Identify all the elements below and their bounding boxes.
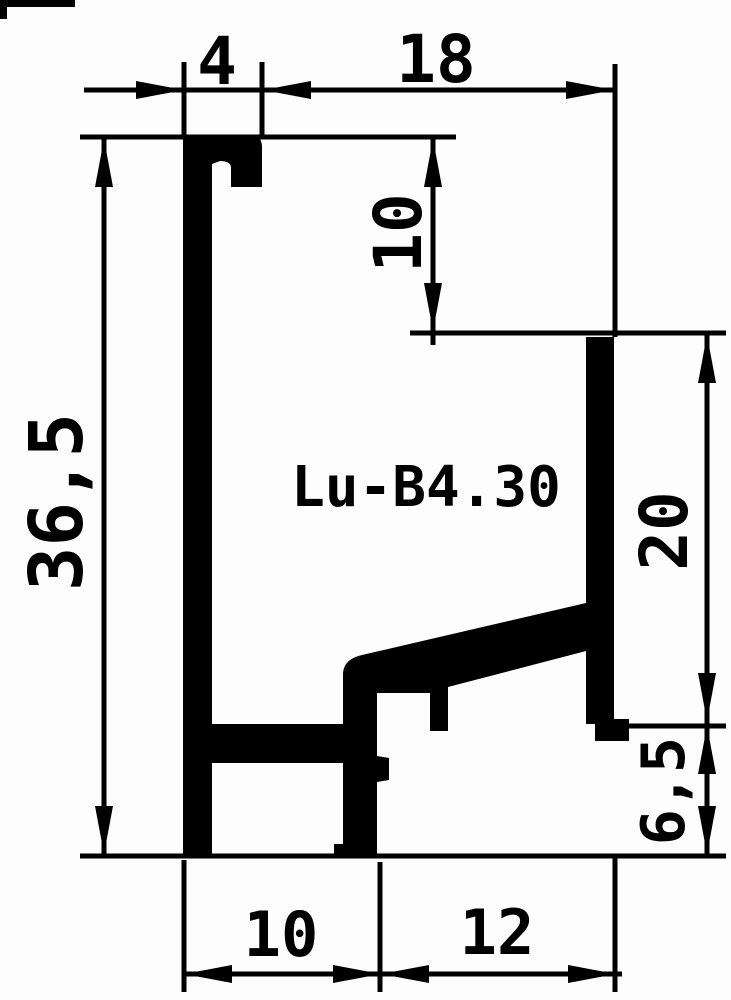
- arrowhead: [184, 965, 232, 983]
- arrowhead: [698, 673, 716, 721]
- profile-label: Lu-B4.30: [291, 455, 561, 520]
- arrowhead: [136, 81, 184, 99]
- arrowhead: [95, 139, 113, 187]
- arrowhead: [381, 965, 429, 983]
- dim-label-inner-height: 10: [360, 193, 437, 272]
- scan-artifact: [0, 0, 75, 7]
- arrowhead: [333, 965, 381, 983]
- arrowhead: [698, 335, 716, 383]
- dim-label-lower-right-height: 6,5: [629, 737, 699, 845]
- dim-label-bottom-right-width: 12: [460, 896, 535, 969]
- arrowhead: [424, 139, 442, 187]
- dim-label-top-opening: 18: [396, 21, 475, 98]
- dim-label-overall-height: 36,5: [14, 413, 100, 591]
- arrowhead: [95, 806, 113, 854]
- dim-label-hook-width: 4: [197, 23, 237, 100]
- arrowhead: [263, 81, 311, 99]
- arrowhead: [568, 965, 616, 983]
- arrowhead: [566, 81, 614, 99]
- arrowhead: [698, 806, 716, 854]
- arrowhead: [698, 726, 716, 774]
- dim-label-bottom-left-width: 10: [244, 898, 319, 971]
- drawing-sheet: 4 18 10 36,5 20 6,5 10 12 Lu-B4.30: [0, 0, 731, 1000]
- technical-drawing: 4 18 10 36,5 20 6,5 10 12 Lu-B4.30: [0, 0, 731, 1000]
- arrowhead: [424, 283, 442, 331]
- dim-label-right-wall-height: 20: [626, 491, 703, 570]
- scan-artifact: [0, 0, 7, 19]
